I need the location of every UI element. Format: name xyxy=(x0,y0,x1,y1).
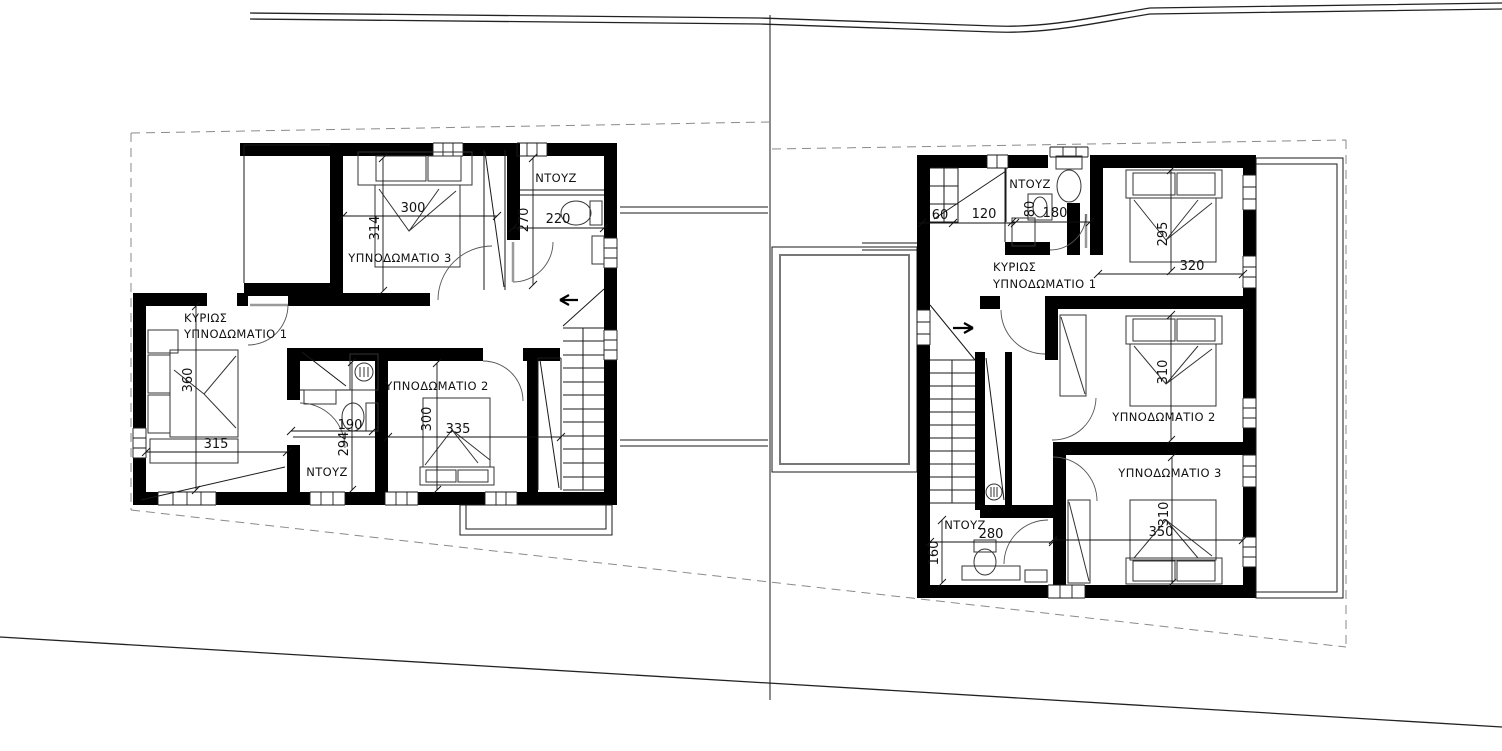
road-line-top-1 xyxy=(250,3,1502,26)
right-terrace-inner xyxy=(1256,164,1337,592)
room-label-right-master-1: ΚΥΡΙΩΣ xyxy=(993,260,1036,274)
right-bath2-toilet xyxy=(974,549,996,575)
dim-right-closet-b: 120 xyxy=(972,207,997,222)
room-label-left-shower-top: ΝΤΟΥΖ xyxy=(535,171,577,185)
left-villa-plan: ΥΠΝΟΔΩΜΑΤΙΟ 3 300 314 ΝΤΟΥΖ 270 220 ΚΥΡΙ… xyxy=(133,143,617,535)
dim-left-bed2-depth: 300 xyxy=(420,407,435,432)
right-staircase xyxy=(930,305,975,503)
room-label-right-bedroom2: ΥΠΝΟΔΩΜΑΤΙΟ 2 xyxy=(1111,410,1215,424)
room-label-left-master-2: ΥΠΝΟΔΩΜΑΤΙΟ 1 xyxy=(183,327,287,341)
right-master-bed xyxy=(1126,170,1222,262)
dim-right-closet-a: 60 xyxy=(932,208,949,223)
dim-right-master-width: 320 xyxy=(1180,259,1205,274)
dim-left-master-width: 315 xyxy=(204,437,229,452)
right-bath2-tray xyxy=(1025,570,1047,582)
right-toilet-tank xyxy=(1056,156,1082,169)
road-line-top-2 xyxy=(250,9,1502,32)
left-porch-inner xyxy=(466,505,606,529)
right-bed3-bed xyxy=(1126,500,1222,584)
dim-left-wc-depth: 294 xyxy=(337,432,352,457)
dim-right-shower-b: 180 xyxy=(1043,206,1068,221)
left-porch-outer xyxy=(460,505,612,535)
toilet-tank xyxy=(590,201,602,225)
dim-right-shower-a: 80 xyxy=(1023,201,1038,218)
right-bed2-door-arc xyxy=(1052,398,1096,440)
site-boundaries xyxy=(0,3,1502,727)
dim-right-bed3-depth: 310 xyxy=(1157,502,1172,527)
right-toilet-icon xyxy=(1057,170,1081,202)
room-label-right-shower-top: ΝΤΟΥΖ xyxy=(1009,177,1051,191)
dim-left-bed3-width: 300 xyxy=(401,201,426,216)
dim-right-master-depth: 295 xyxy=(1156,222,1171,247)
right-wc-basin-bars xyxy=(991,487,997,497)
right-villa-plan: 60 120 ΝΤΟΥΖ 80 180 ΚΥΡΙΩΣ ΥΠΝΟΔΩΜΑΤΙΟ 1… xyxy=(917,147,1343,598)
right-bed2-wardrobe xyxy=(1060,315,1086,396)
room-label-right-master-2: ΥΠΝΟΔΩΜΑΤΙΟ 1 xyxy=(992,277,1096,291)
dim-right-shower2-depth: 160 xyxy=(927,541,942,566)
bath-cabinet xyxy=(592,236,604,264)
dim-left-wc-width: 190 xyxy=(338,418,363,433)
left-staircase xyxy=(560,289,604,490)
dim-left-bed3-depth: 314 xyxy=(368,216,383,241)
wc-shelf xyxy=(304,390,336,404)
room-label-right-bedroom3: ΥΠΝΟΔΩΜΑΤΙΟ 3 xyxy=(1117,466,1221,480)
right-terrace-outer xyxy=(1256,158,1343,598)
left-stair-direction-arrow xyxy=(560,295,578,305)
road-line-bottom xyxy=(0,637,1502,727)
right-balcony-inner xyxy=(780,255,909,464)
right-master-door-arc xyxy=(1001,310,1045,354)
dim-right-bed2-depth: 310 xyxy=(1156,360,1171,385)
right-bed3-wardrobe xyxy=(1068,500,1090,583)
room-label-left-bedroom3: ΥΠΝΟΔΩΜΑΤΙΟ 3 xyxy=(347,251,451,265)
dim-left-master-depth: 360 xyxy=(181,368,196,393)
dim-left-shower-width: 220 xyxy=(546,212,571,227)
room-label-left-master-1: ΚΥΡΙΩΣ xyxy=(184,311,227,325)
left-void-edges xyxy=(620,207,768,446)
dim-left-shower-depth: 270 xyxy=(517,208,532,233)
washbasin-bars xyxy=(360,367,368,377)
right-stair-direction-arrow xyxy=(953,323,973,333)
room-label-left-bedroom2: ΥΠΝΟΔΩΜΑΤΙΟ 2 xyxy=(384,379,488,393)
right-stair-treads xyxy=(930,305,975,503)
left-stair-treads xyxy=(563,289,604,490)
dim-left-bed2-width: 335 xyxy=(446,422,471,437)
room-label-left-shower-bottom: ΝΤΟΥΖ xyxy=(306,465,348,479)
right-balcony-outer xyxy=(772,247,917,472)
right-bed2-bed xyxy=(1126,316,1222,406)
floor-plan-drawing: ΥΠΝΟΔΩΜΑΤΙΟ 3 300 314 ΝΤΟΥΖ 270 220 ΚΥΡΙ… xyxy=(0,0,1502,751)
left-door-arcs xyxy=(248,242,553,448)
dim-right-shower2-width: 280 xyxy=(979,527,1004,542)
bed2-door-arc xyxy=(483,361,523,401)
dim-right-bed3-width: 350 xyxy=(1149,525,1174,540)
